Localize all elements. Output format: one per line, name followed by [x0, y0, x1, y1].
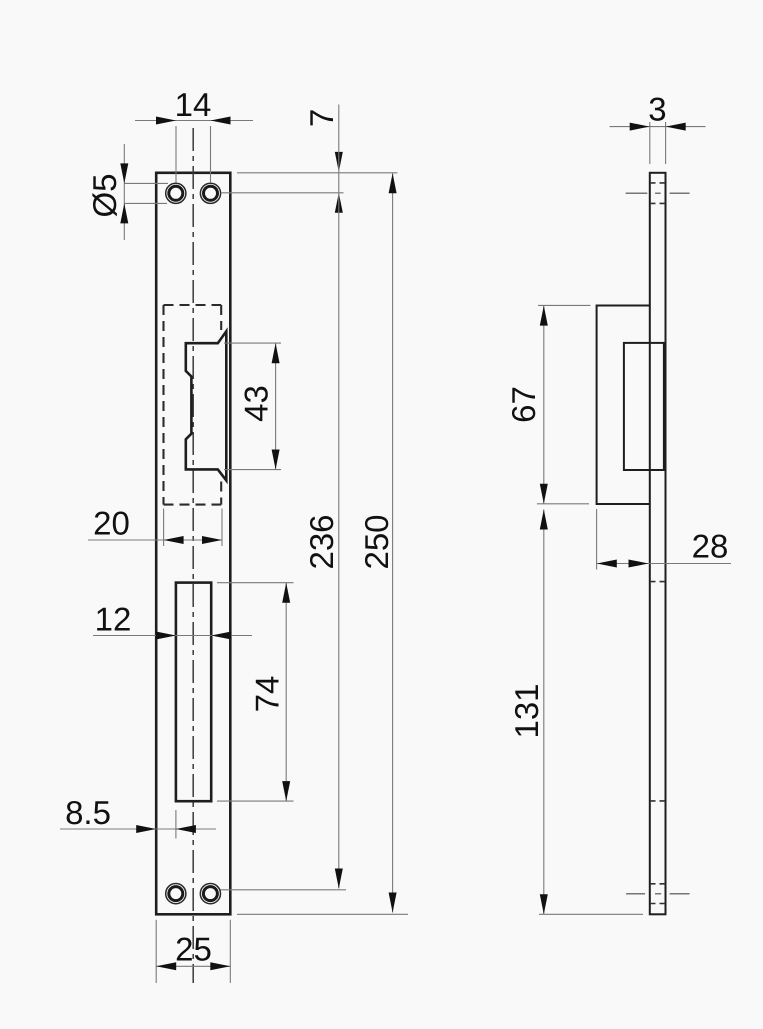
svg-text:20: 20 — [93, 505, 130, 542]
svg-text:3: 3 — [648, 91, 666, 128]
svg-text:236: 236 — [303, 514, 340, 569]
svg-text:14: 14 — [175, 86, 212, 123]
svg-text:67: 67 — [505, 386, 542, 423]
svg-text:12: 12 — [95, 601, 132, 638]
svg-text:74: 74 — [249, 676, 286, 713]
svg-text:28: 28 — [692, 528, 729, 565]
svg-text:Ø5: Ø5 — [86, 173, 123, 217]
svg-text:250: 250 — [358, 514, 395, 569]
svg-text:43: 43 — [238, 385, 275, 422]
svg-text:25: 25 — [175, 931, 212, 968]
svg-text:8.5: 8.5 — [65, 794, 111, 831]
svg-text:131: 131 — [508, 683, 545, 738]
svg-text:7: 7 — [303, 109, 340, 127]
